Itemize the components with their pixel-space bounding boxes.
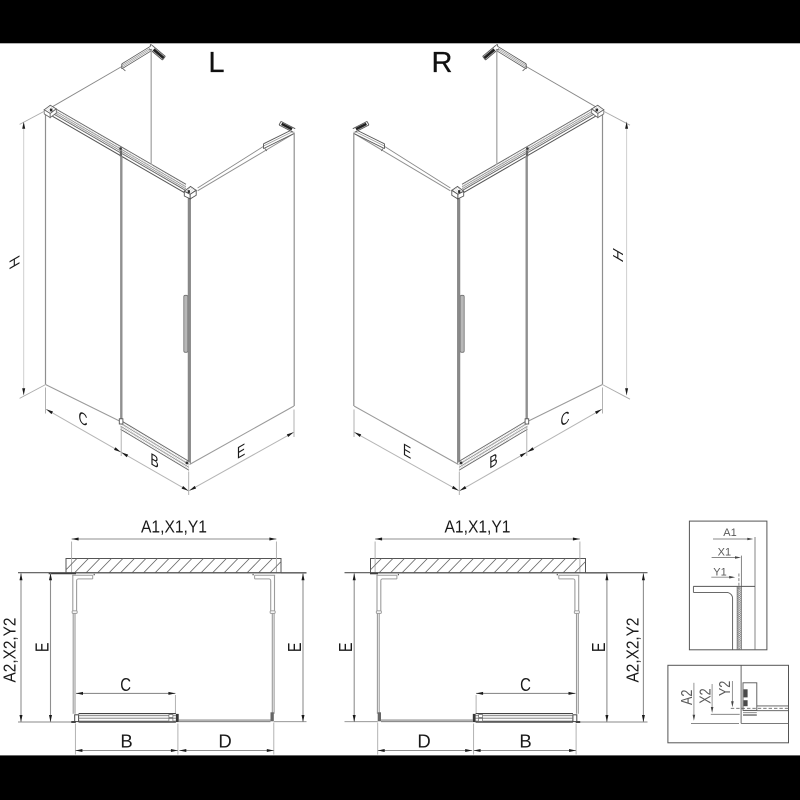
svg-text:R: R — [432, 47, 453, 79]
svg-text:C: C — [520, 674, 531, 695]
svg-text:A1,X1,Y1: A1,X1,Y1 — [445, 517, 511, 537]
svg-text:X1: X1 — [718, 546, 731, 558]
svg-text:L: L — [208, 47, 224, 79]
svg-text:Y2: Y2 — [717, 681, 734, 696]
svg-text:E: E — [285, 643, 305, 653]
svg-text:A2,X2,Y2: A2,X2,Y2 — [623, 618, 643, 683]
svg-text:A2: A2 — [679, 690, 696, 705]
svg-text:X2: X2 — [698, 688, 715, 703]
svg-text:E: E — [336, 643, 356, 653]
svg-text:E: E — [589, 643, 609, 653]
svg-text:A1,X1,Y1: A1,X1,Y1 — [141, 517, 207, 537]
svg-text:E: E — [33, 643, 53, 653]
svg-text:D: D — [218, 730, 231, 751]
svg-text:B: B — [519, 730, 531, 751]
svg-text:C: C — [120, 674, 131, 695]
svg-text:Y1: Y1 — [713, 566, 726, 578]
svg-text:D: D — [417, 730, 430, 751]
svg-text:B: B — [120, 730, 132, 751]
svg-text:A1: A1 — [723, 527, 736, 539]
svg-text:A2,X2,Y2: A2,X2,Y2 — [0, 618, 20, 683]
